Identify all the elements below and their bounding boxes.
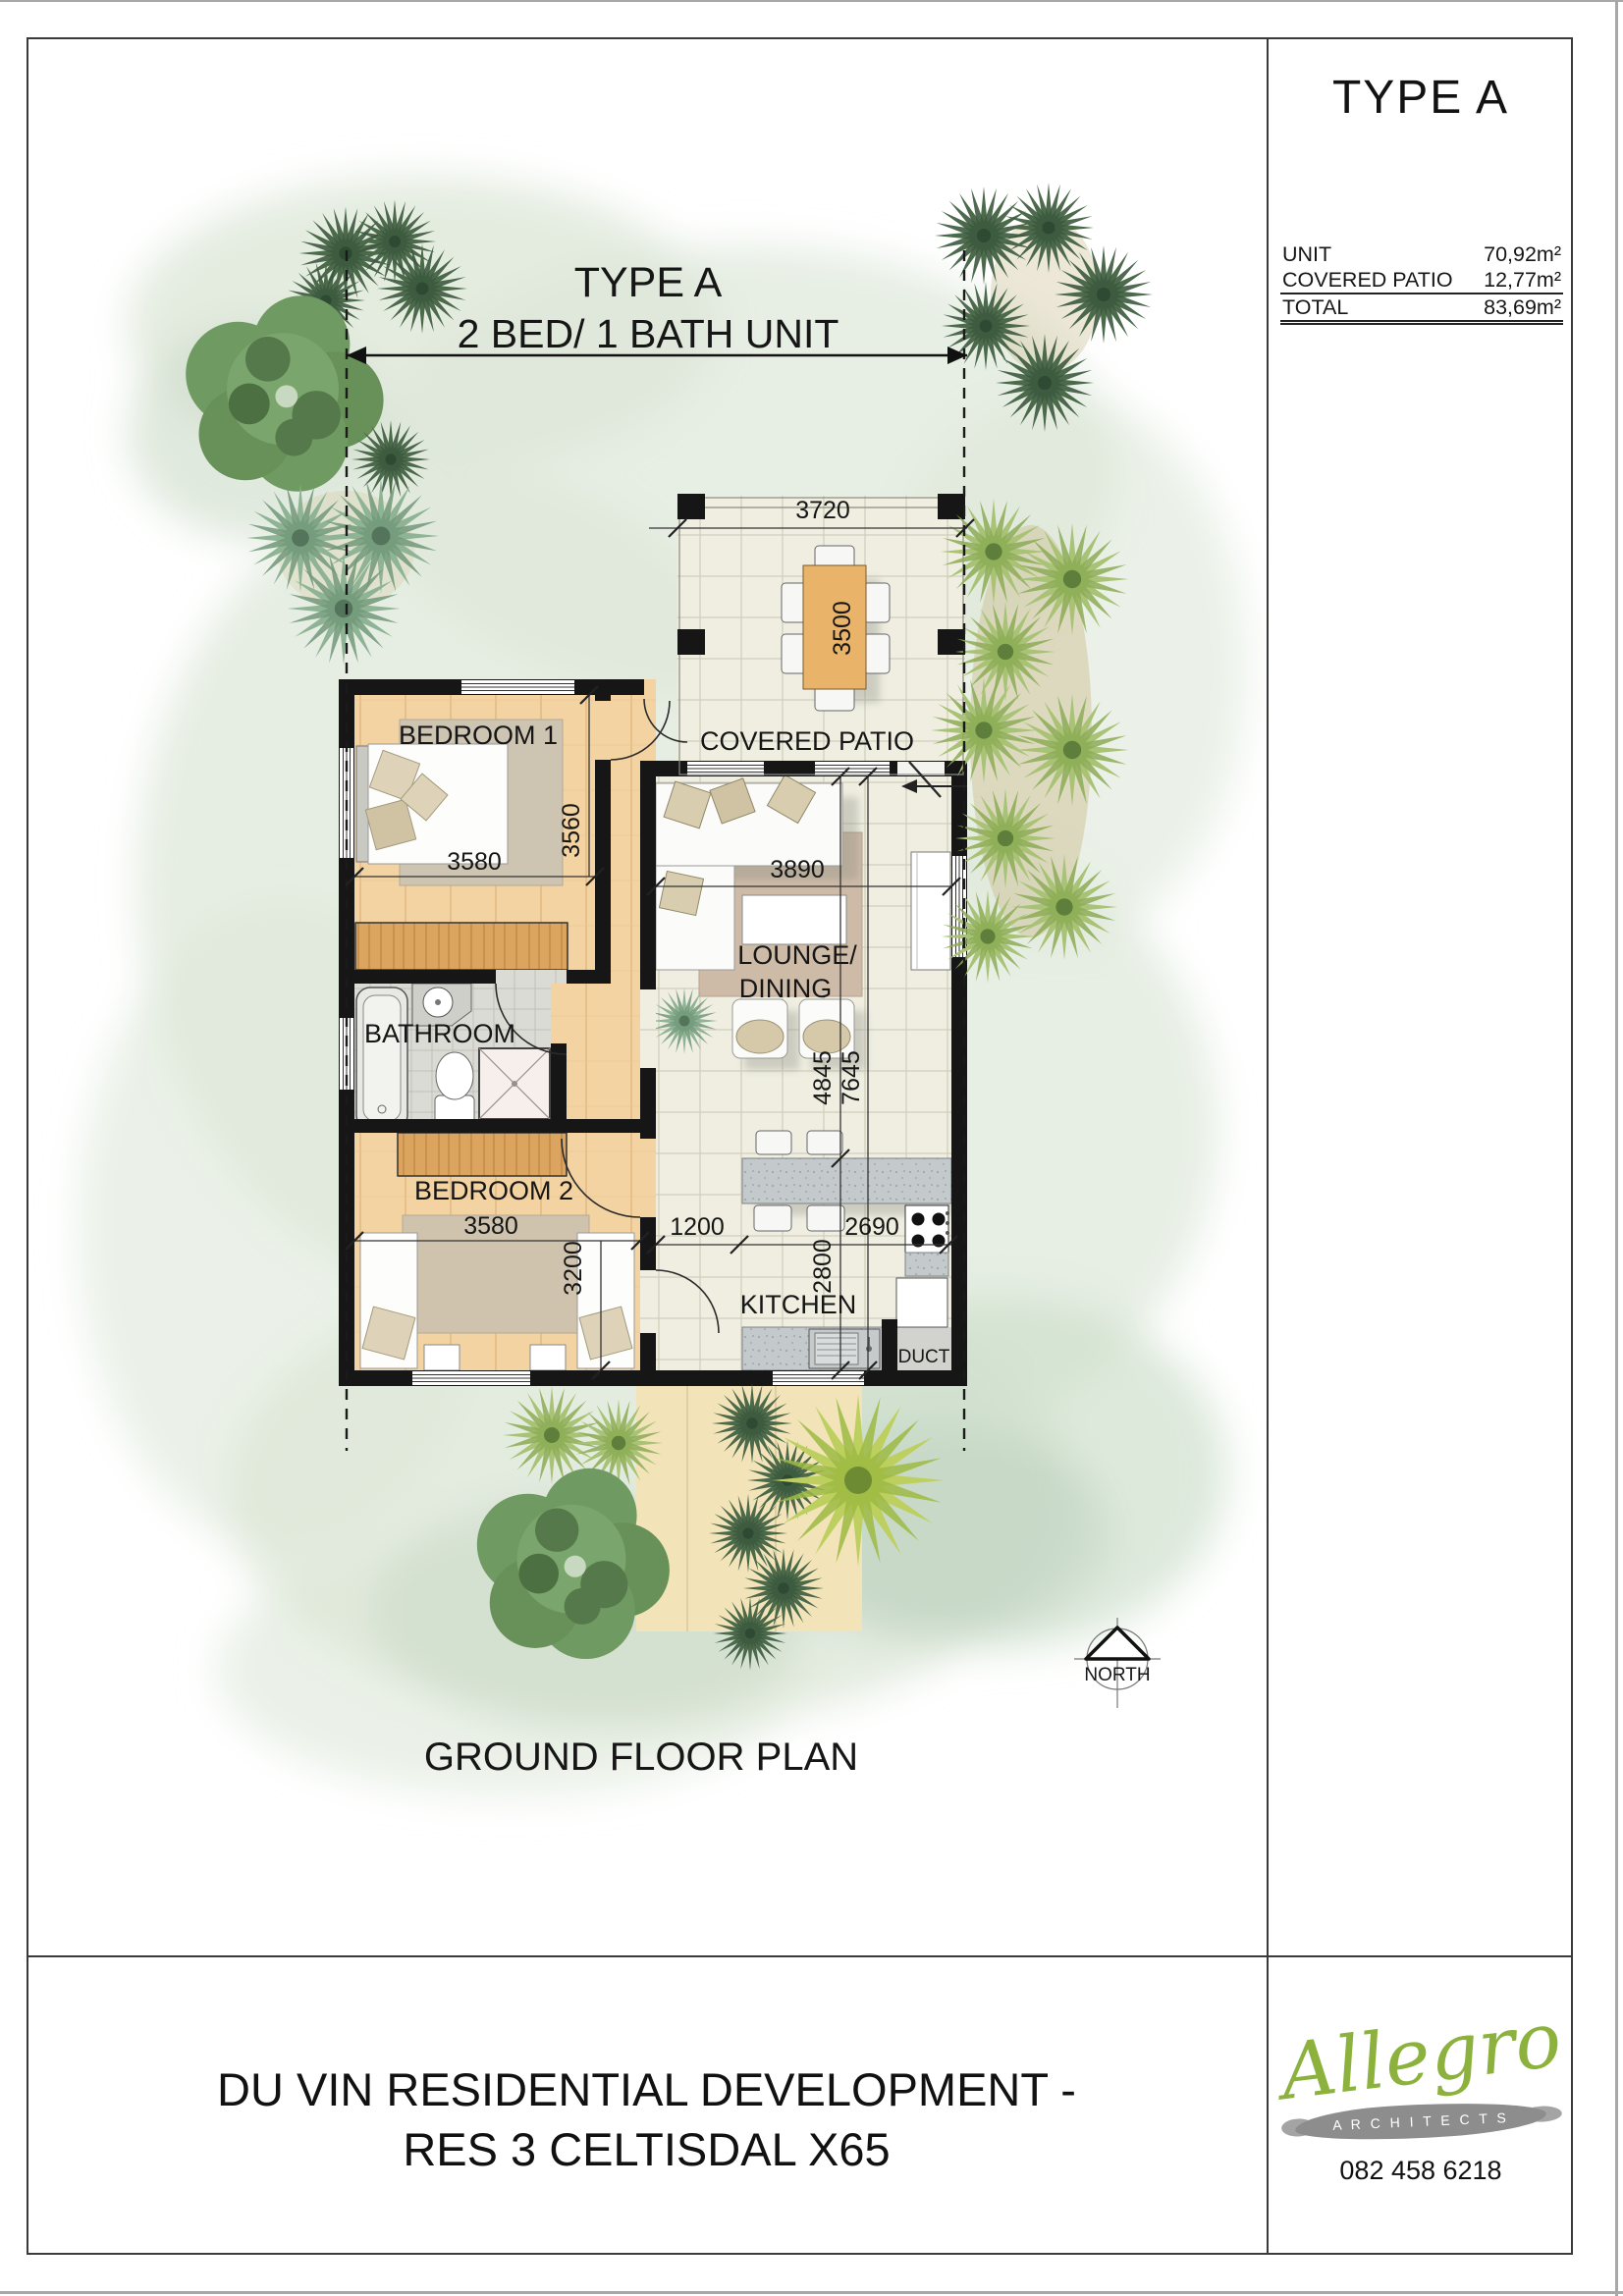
breakfast-bar [742, 1158, 951, 1203]
dim-bed2-width: 3580 [463, 1212, 518, 1240]
dim-bed1-width: 3580 [447, 848, 502, 876]
dim-patio-depth: 3500 [829, 601, 856, 656]
label-bedroom1: BEDROOM 1 [399, 721, 558, 750]
area-row-total: TOTAL 83,69m² [1280, 294, 1563, 325]
area-label: UNIT [1282, 241, 1331, 267]
wardrobe [398, 1133, 567, 1176]
scan-edge-right [1615, 0, 1618, 2296]
project-title: DU VIN RESIDENTIAL DEVELOPMENT - RES 3 C… [27, 2059, 1267, 2179]
project-title-line1: DU VIN RESIDENTIAL DEVELOPMENT - [27, 2059, 1267, 2119]
plan-unit-subtitle: 2 BED/ 1 BATH UNIT [458, 311, 839, 356]
dim-passage: 1200 [670, 1213, 725, 1241]
bathtub [356, 988, 407, 1129]
floor-plan-drawing: TYPE A 2 BED/ 1 BATH UNIT 3720 3500 3580… [27, 37, 1267, 1955]
shower [479, 1048, 550, 1119]
dim-patio-width: 3720 [795, 497, 850, 524]
north-label: NORTH [1084, 1665, 1150, 1685]
area-row-covered-patio: COVERED PATIO 12,77m² [1280, 267, 1563, 294]
coffee-table [742, 895, 846, 944]
scan-edge-bottom [0, 2291, 1623, 2294]
nightstand [530, 1345, 566, 1370]
area-value: 70,92m² [1484, 241, 1561, 267]
label-bedroom2: BEDROOM 2 [414, 1176, 573, 1205]
logo-script-name: Allegro [1277, 2005, 1565, 2108]
project-title-line2: RES 3 CELTISDAL X65 [27, 2119, 1267, 2179]
area-value: 12,77m² [1484, 267, 1561, 293]
nightstand [424, 1345, 460, 1370]
wardrobe [355, 923, 568, 970]
scan-edge-top [0, 0, 1623, 2]
stove [905, 1205, 949, 1253]
dim-kitchen-width: 2690 [844, 1213, 899, 1241]
dim-total-depth: 7645 [838, 1050, 865, 1105]
label-bathroom: BATHROOM [364, 1019, 515, 1048]
architect-logo: Allegro A R C H I T E C T S 082 458 6218 [1269, 2002, 1573, 2186]
label-lounge-line2: DINING [739, 974, 833, 1003]
toilet [435, 1052, 474, 1123]
title-block-type: TYPE A [1269, 71, 1573, 125]
dim-lounge-depth: 4845 [809, 1050, 837, 1105]
label-lounge-line1: LOUNGE/ [737, 940, 857, 970]
area-row-unit: UNIT 70,92m² [1280, 241, 1563, 267]
area-value: 83,69m² [1484, 294, 1561, 320]
bed [356, 744, 508, 864]
dim-lounge-width: 3890 [770, 856, 825, 883]
footer-divider [27, 1955, 1573, 1957]
area-table: UNIT 70,92m² COVERED PATIO 12,77m² TOTAL… [1280, 241, 1563, 325]
plan-type-title: TYPE A [574, 259, 723, 306]
logo-phone: 082 458 6218 [1269, 2156, 1573, 2186]
fridge [896, 1278, 947, 1327]
bed2-left [360, 1233, 417, 1368]
dim-bed2-depth: 3200 [560, 1241, 587, 1296]
label-kitchen: KITCHEN [740, 1290, 857, 1319]
label-covered-patio: COVERED PATIO [700, 726, 914, 756]
plan-caption: GROUND FLOOR PLAN [424, 1735, 858, 1779]
title-column-divider [1267, 37, 1269, 2255]
label-duct: DUCT [898, 1347, 950, 1367]
sink [809, 1329, 880, 1368]
dim-kitchen-depth: 2800 [809, 1239, 837, 1294]
dim-bed1-depth: 3560 [558, 803, 585, 858]
area-label: TOTAL [1282, 294, 1348, 320]
area-label: COVERED PATIO [1282, 267, 1453, 293]
logo-subtitle: A R C H I T E C T S [1332, 2109, 1509, 2133]
